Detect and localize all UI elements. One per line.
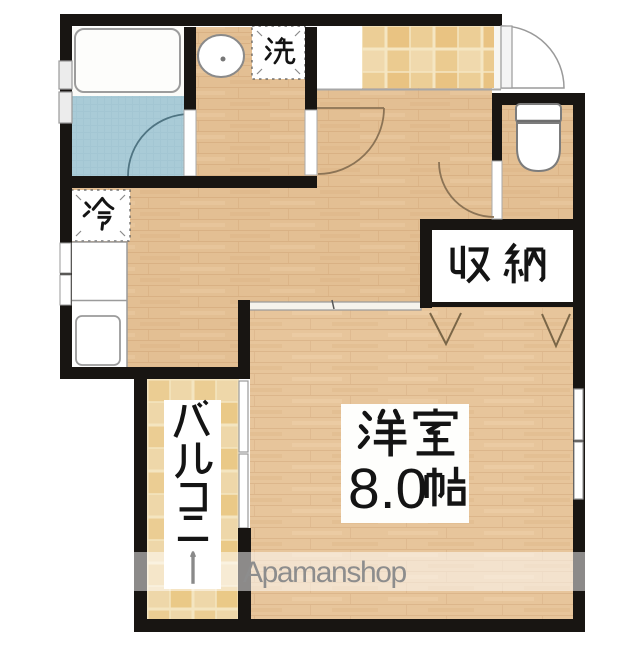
svg-text:8.0: 8.0: [348, 457, 427, 521]
svg-text:Apamanshop: Apamanshop: [243, 556, 407, 589]
